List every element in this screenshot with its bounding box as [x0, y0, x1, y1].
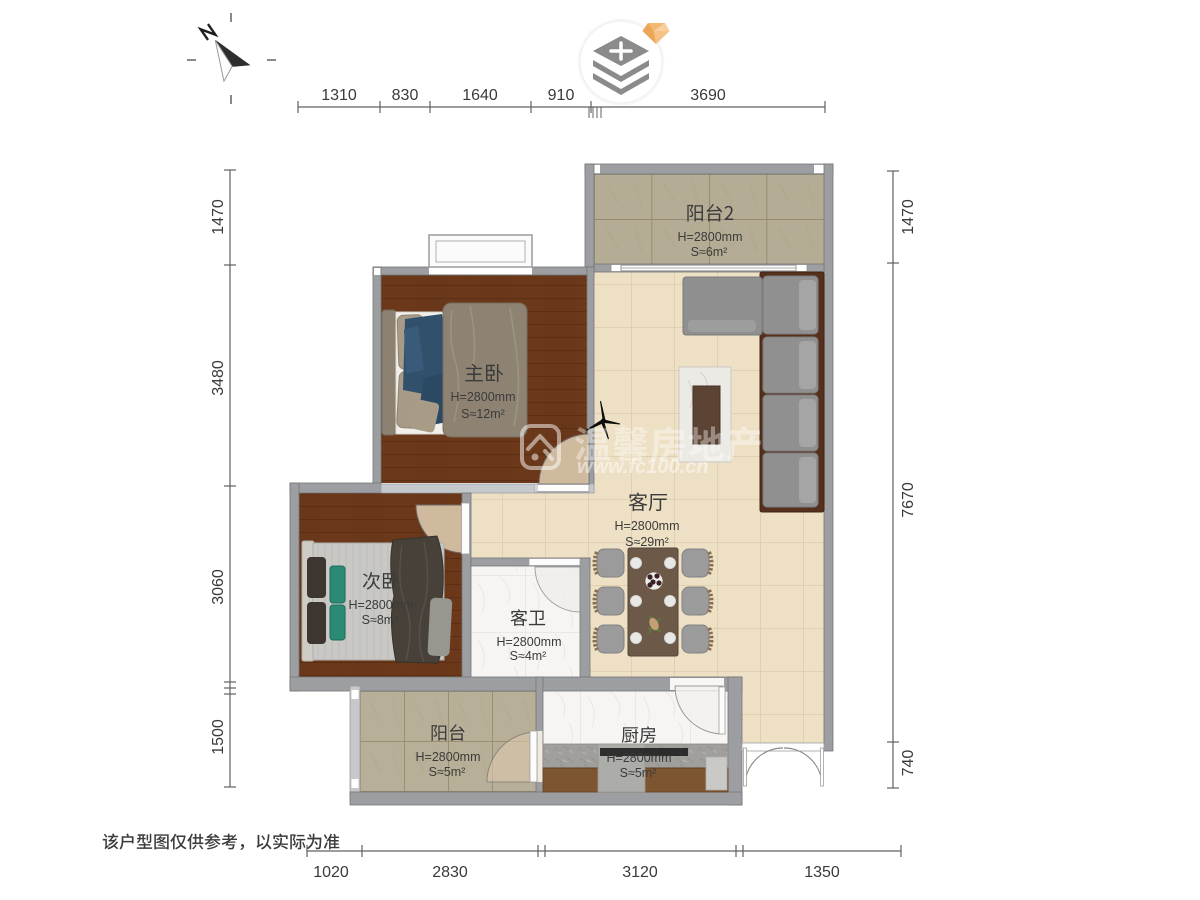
svg-text:830: 830 — [392, 87, 419, 104]
svg-text:S≈8m²: S≈8m² — [362, 613, 399, 627]
svg-text:1470: 1470 — [900, 199, 917, 235]
svg-text:740: 740 — [900, 750, 917, 777]
svg-text:S≈4m²: S≈4m² — [510, 649, 547, 663]
svg-text:3060: 3060 — [210, 569, 227, 605]
svg-text:3120: 3120 — [622, 864, 658, 881]
svg-text:1640: 1640 — [462, 87, 498, 104]
svg-text:1470: 1470 — [210, 199, 227, 235]
svg-text:H=2800mm: H=2800mm — [349, 598, 414, 612]
svg-text:H=2800mm: H=2800mm — [416, 750, 481, 764]
svg-text:S≈12m²: S≈12m² — [461, 407, 505, 421]
svg-text:7670: 7670 — [900, 482, 917, 518]
svg-text:H=2800mm: H=2800mm — [678, 230, 743, 244]
svg-text:S≈6m²: S≈6m² — [691, 245, 728, 259]
svg-text:2830: 2830 — [432, 864, 468, 881]
svg-text:3480: 3480 — [210, 360, 227, 396]
svg-text:H=2800mm: H=2800mm — [497, 635, 562, 649]
svg-text:1350: 1350 — [804, 864, 840, 881]
svg-text:S≈5m²: S≈5m² — [620, 766, 657, 780]
svg-text:1500: 1500 — [210, 719, 227, 755]
svg-text:3690: 3690 — [690, 87, 726, 104]
svg-text:H=2800mm: H=2800mm — [451, 390, 516, 404]
svg-text:S≈5m²: S≈5m² — [429, 765, 466, 779]
svg-text:S≈29m²: S≈29m² — [625, 535, 669, 549]
svg-text:H=2800mm: H=2800mm — [607, 751, 672, 765]
svg-text:1310: 1310 — [321, 87, 357, 104]
svg-text:1020: 1020 — [313, 864, 349, 881]
svg-text:www.fc100.cn: www.fc100.cn — [577, 456, 709, 478]
svg-text:H=2800mm: H=2800mm — [615, 519, 680, 533]
svg-text:910: 910 — [548, 87, 575, 104]
